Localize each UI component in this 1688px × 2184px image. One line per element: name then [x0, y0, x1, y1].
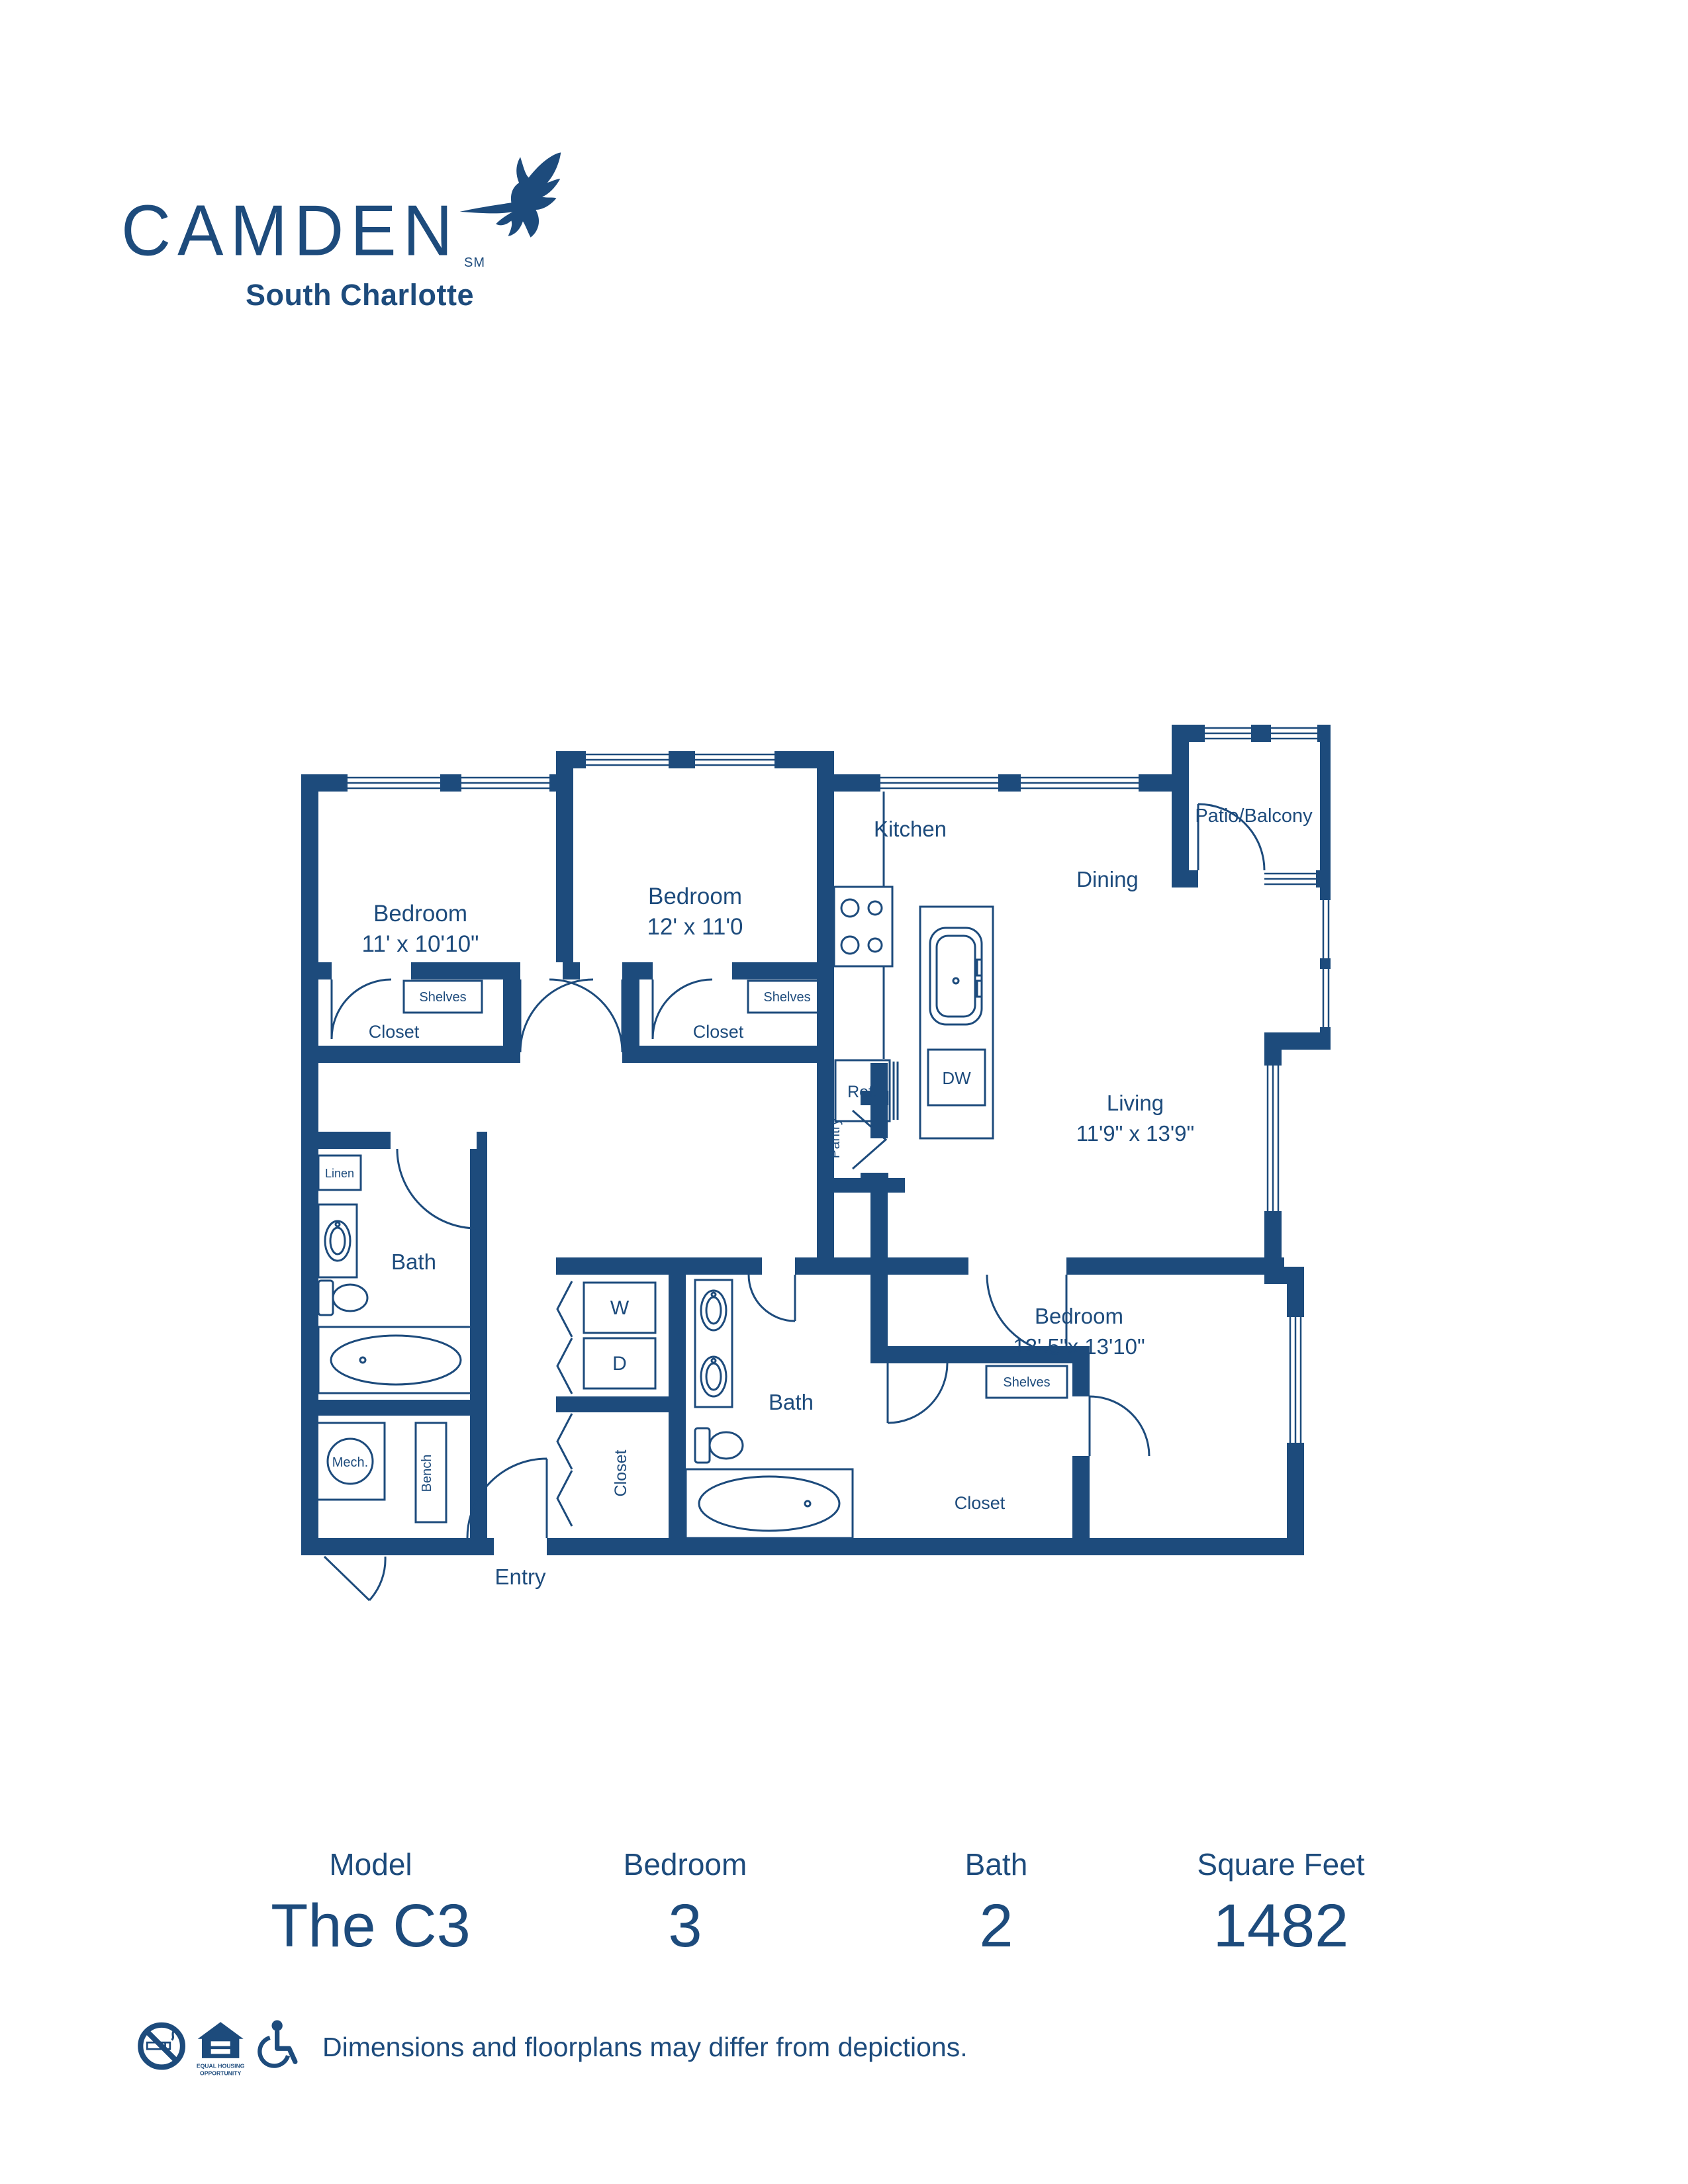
dw-label: DW	[942, 1068, 971, 1088]
footer-icons: EQUAL HOUSING OPPORTUNITY	[129, 2017, 314, 2083]
bifold-door	[557, 1281, 572, 1337]
eho-text-line1: EQUAL HOUSING	[197, 2062, 245, 2069]
bedroom3-dims: 12' 5"x 13'10"	[1013, 1334, 1145, 1359]
bath2-label: Bath	[769, 1390, 814, 1414]
stat-bath-value: 2	[864, 1891, 1129, 1961]
no-smoking-icon	[140, 2025, 183, 2068]
bath1-tub	[318, 1327, 473, 1393]
living-dims: 11'9" x 13'9"	[1076, 1121, 1195, 1146]
hummingbird-icon	[451, 139, 567, 255]
shelves2-label: Shelves	[763, 990, 810, 1005]
bifold-door	[557, 1471, 572, 1526]
stat-bath-label: Bath	[864, 1846, 1129, 1882]
washer-label: W	[610, 1297, 630, 1319]
bedroom2-dims: 12' x 11'0	[647, 914, 743, 940]
ref-label: Ref.	[847, 1083, 878, 1101]
closet3-label: Closet	[955, 1493, 1006, 1513]
entry-closet-label: Closet	[612, 1450, 630, 1497]
bedroom3-label: Bedroom	[1035, 1304, 1123, 1328]
shelves1-label: Shelves	[419, 990, 466, 1005]
stat-model: Model The C3	[205, 1846, 536, 1961]
living-label: Living	[1107, 1091, 1164, 1115]
bath2-vanity	[695, 1280, 732, 1407]
brand-trademark: SM	[464, 255, 485, 271]
floor-plan-drawing: Bedroom 11' x 10'10" Bedroom 12' x 11'0 …	[285, 682, 1331, 1602]
bifold-door	[557, 1338, 572, 1394]
bedroom2-label: Bedroom	[648, 884, 742, 909]
stat-sqft-label: Square Feet	[1115, 1846, 1446, 1882]
stove-icon	[834, 887, 892, 966]
equal-housing-icon: EQUAL HOUSING OPPORTUNITY	[197, 2022, 245, 2076]
stat-bedroom-value: 3	[553, 1891, 818, 1961]
mech-label: Mech.	[332, 1455, 368, 1470]
stat-bedroom-label: Bedroom	[553, 1846, 818, 1882]
kitchen-island	[920, 907, 993, 1138]
bath1-toilet	[318, 1281, 367, 1315]
brand-logo: CAMDEN SM South Charlotte	[121, 151, 585, 336]
bedroom1-dims: 11' x 10'10"	[362, 931, 479, 957]
bath2-toilet	[695, 1428, 743, 1463]
stat-bedroom: Bedroom 3	[553, 1846, 818, 1961]
bath1-label: Bath	[391, 1250, 436, 1274]
bench-label: Bench	[420, 1455, 434, 1492]
pantry-label: Pantry	[827, 1118, 843, 1158]
entry-label: Entry	[494, 1565, 546, 1589]
brand-name: CAMDEN	[121, 191, 459, 273]
brand-property: South Charlotte	[246, 278, 471, 312]
stat-sqft-value: 1482	[1115, 1891, 1446, 1961]
floorplan-sheet: CAMDEN SM South Charlotte	[0, 0, 1688, 2184]
eho-text-line2: OPPORTUNITY	[200, 2070, 242, 2076]
bath1-sink	[318, 1205, 357, 1277]
dining-label: Dining	[1076, 867, 1139, 891]
stat-sqft: Square Feet 1482	[1115, 1846, 1446, 1961]
linen-label: Linen	[325, 1167, 354, 1180]
floor-plan: Bedroom 11' x 10'10" Bedroom 12' x 11'0 …	[285, 682, 1331, 1602]
kitchen-label: Kitchen	[874, 817, 947, 841]
stats-row: Model The C3 Bedroom 3 Bath 2 Square Fee…	[0, 1846, 1688, 2005]
bath2-tub	[686, 1469, 853, 1538]
bifold-door	[557, 1414, 572, 1469]
bedroom1-label: Bedroom	[373, 901, 467, 927]
patio-label: Patio/Balcony	[1195, 805, 1313, 827]
accessibility-icon	[259, 2021, 295, 2066]
dryer-label: D	[612, 1353, 627, 1375]
shelves3-label: Shelves	[1003, 1375, 1050, 1390]
stat-model-value: The C3	[205, 1891, 536, 1961]
closet2-label: Closet	[693, 1022, 744, 1042]
footer: EQUAL HOUSING OPPORTUNITY Dimensions and…	[129, 2017, 1585, 2097]
stat-model-label: Model	[205, 1846, 536, 1882]
stat-bath: Bath 2	[864, 1846, 1129, 1961]
disclaimer-text: Dimensions and floorplans may differ fro…	[322, 2032, 968, 2063]
closet1-label: Closet	[369, 1022, 420, 1042]
